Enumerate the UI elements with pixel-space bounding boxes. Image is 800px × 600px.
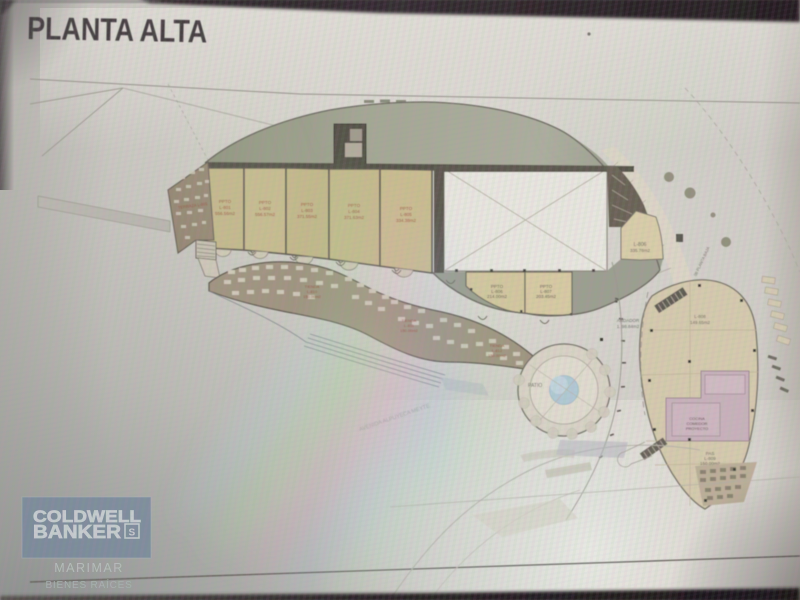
svg-text:BANKER: BANKER <box>33 522 121 542</box>
svg-text:MARIMAR: MARIMAR <box>54 561 124 575</box>
svg-text:BIENES RAÍCES: BIENES RAÍCES <box>45 578 132 591</box>
svg-text:S: S <box>129 528 136 539</box>
